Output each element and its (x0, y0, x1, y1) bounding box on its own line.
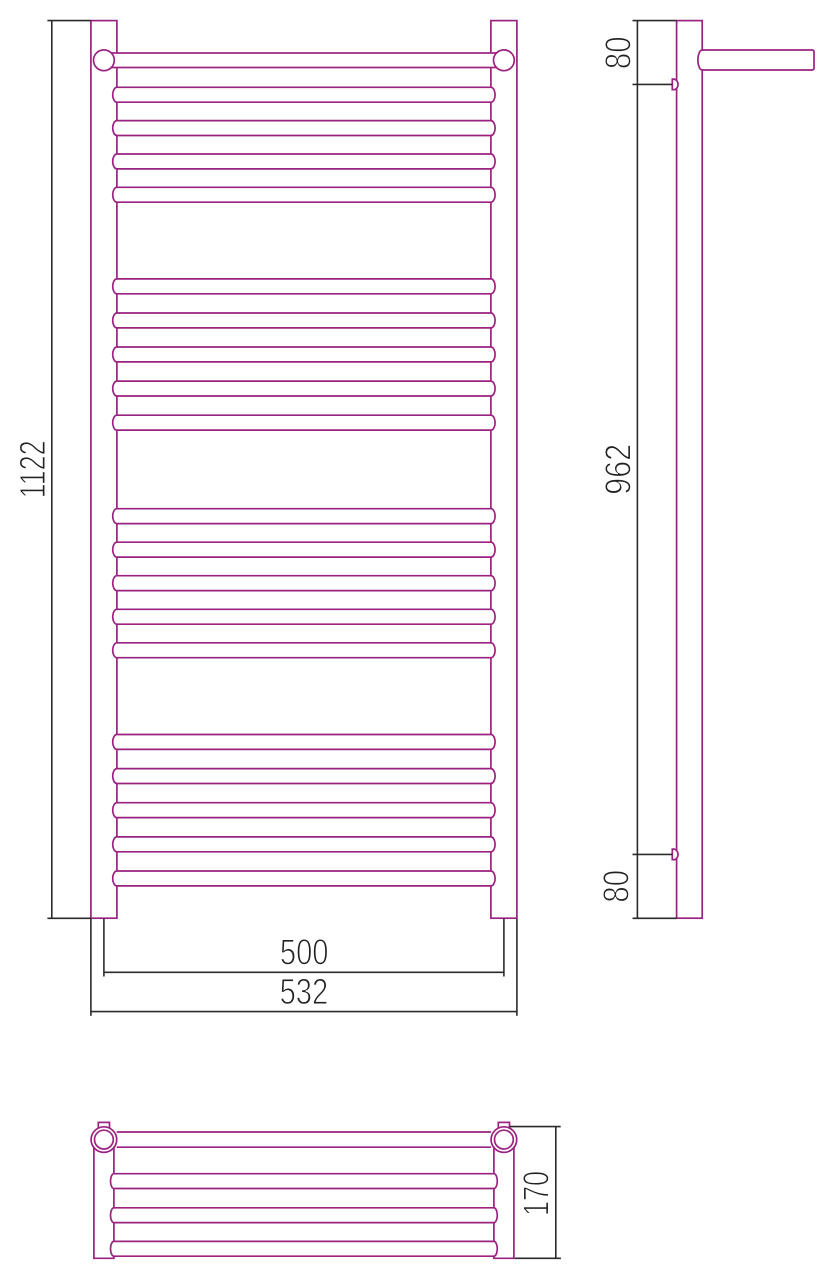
svg-text:962: 962 (599, 444, 639, 495)
svg-text:80: 80 (595, 870, 636, 903)
svg-text:80: 80 (597, 36, 638, 69)
svg-text:532: 532 (280, 971, 329, 1012)
svg-text:1122: 1122 (12, 440, 53, 498)
svg-text:500: 500 (280, 932, 329, 973)
svg-text:170: 170 (516, 1171, 557, 1216)
